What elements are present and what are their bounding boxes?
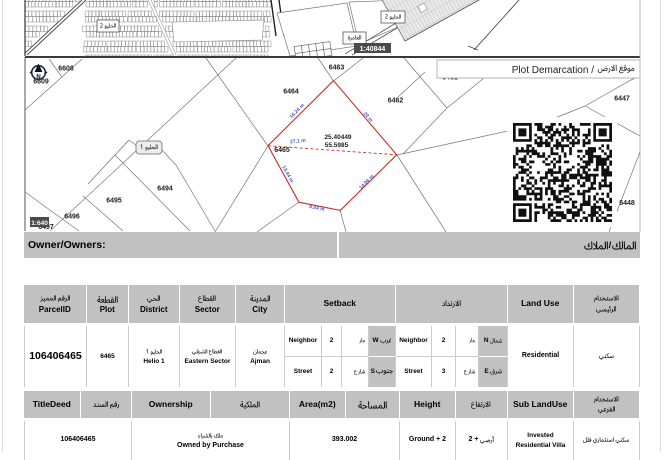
svg-text:27.1 m: 27.1 m (290, 138, 307, 146)
svg-text:6447: 6447 (614, 96, 630, 103)
svg-text:16.24 m: 16.24 m (289, 102, 307, 120)
svg-text:6495: 6495 (106, 198, 122, 205)
svg-text:6464: 6464 (283, 89, 299, 96)
svg-text:14.06 m: 14.06 m (358, 173, 376, 191)
svg-text:Plot Demarcation /: Plot Demarcation / (512, 65, 594, 76)
svg-text:6608: 6608 (58, 66, 74, 73)
svg-text:8.04 m: 8.04 m (309, 204, 326, 213)
svg-text:6462: 6462 (388, 98, 404, 105)
svg-text:6448: 6448 (619, 200, 635, 207)
svg-text:1:640: 1:640 (31, 220, 48, 227)
svg-text:1:40844: 1:40844 (360, 46, 386, 53)
svg-text:6465: 6465 (274, 147, 290, 154)
svg-text:N: N (36, 75, 40, 81)
svg-text:55.5985: 55.5985 (325, 142, 349, 149)
svg-text:25.40449: 25.40449 (324, 134, 351, 141)
svg-text:20 m: 20 m (362, 111, 374, 124)
svg-text:6494: 6494 (157, 186, 173, 193)
svg-text:6496: 6496 (64, 214, 80, 221)
svg-text:6463: 6463 (329, 65, 345, 72)
